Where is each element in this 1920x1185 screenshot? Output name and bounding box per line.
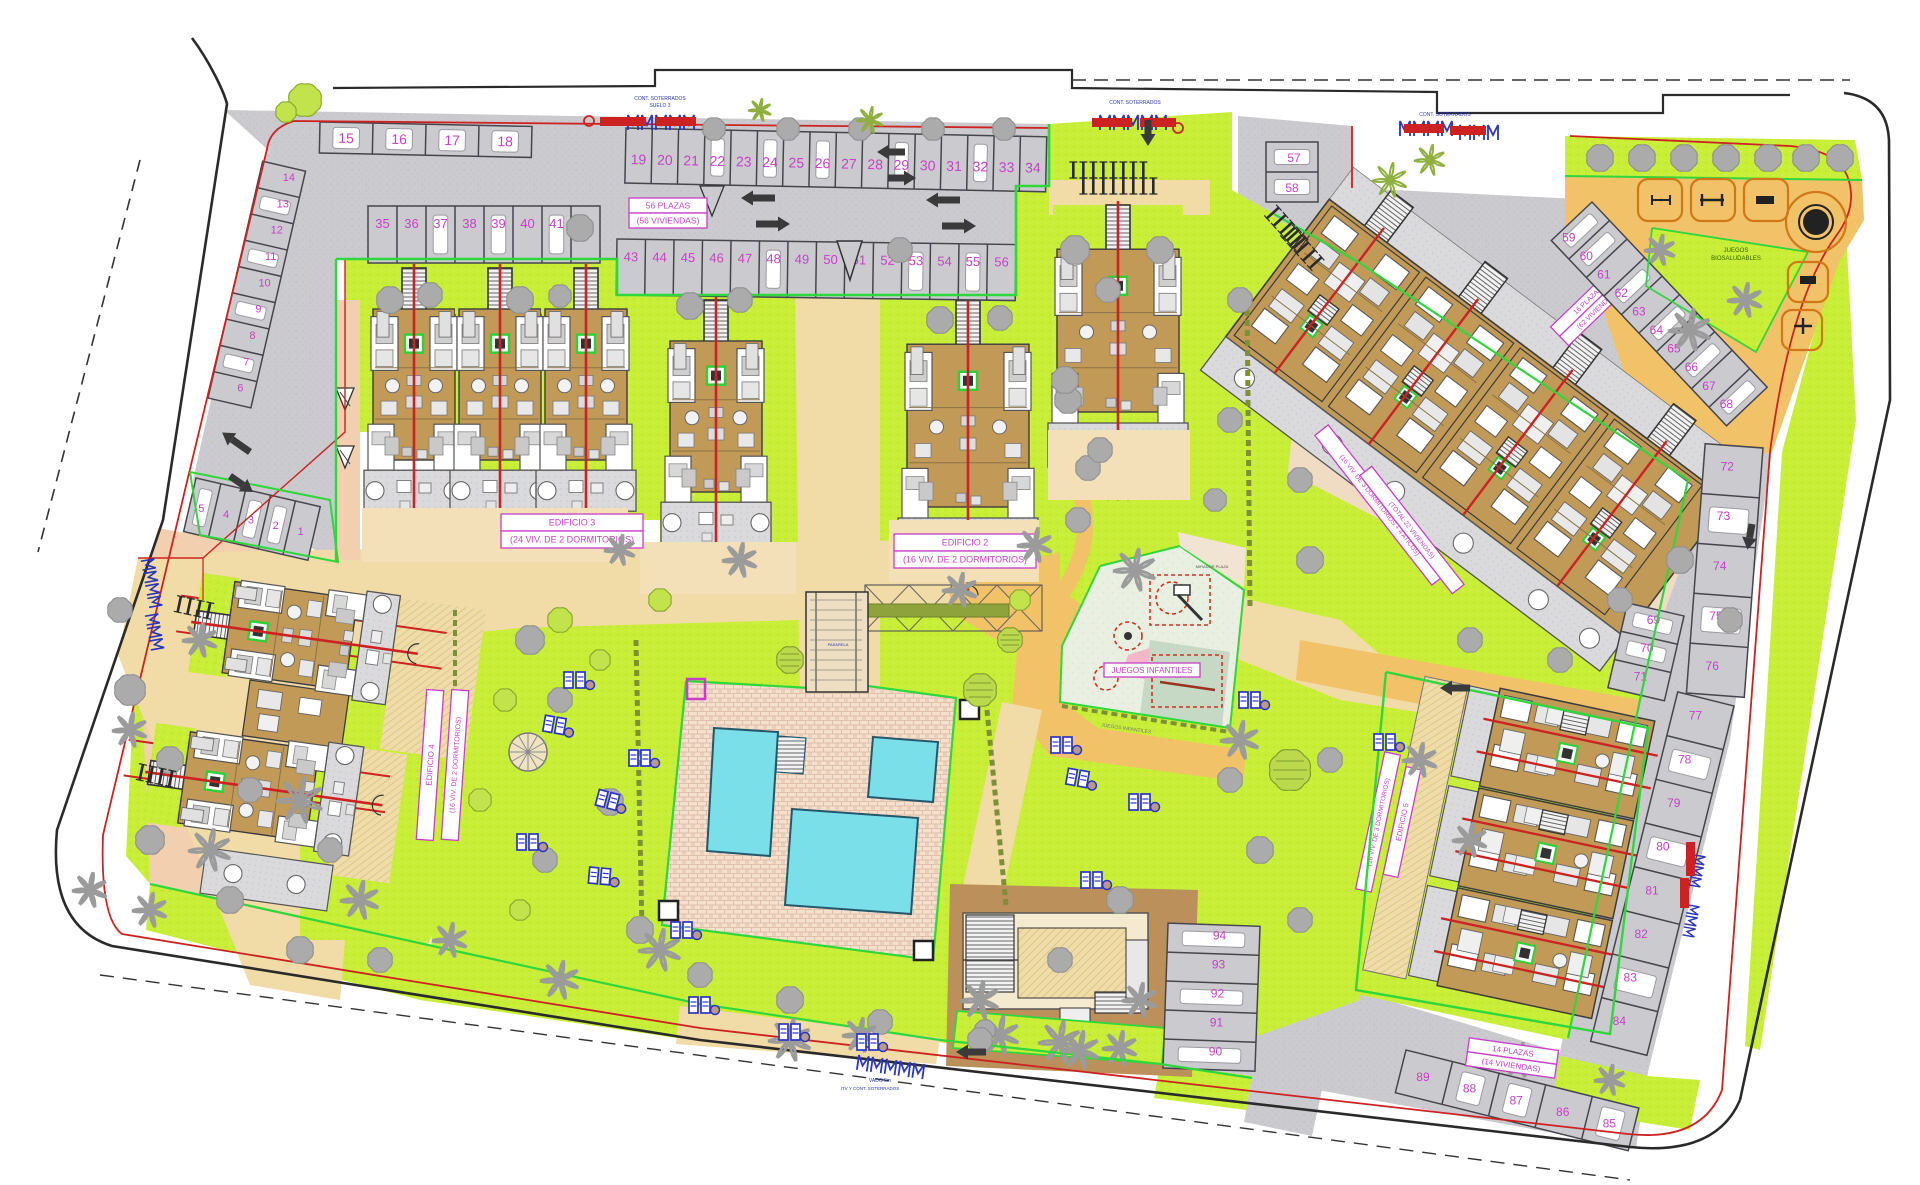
svg-text:10: 10 [258,277,270,289]
svg-text:JUEGOS INFANTILES: JUEGOS INFANTILES [1112,666,1193,675]
svg-text:56: 56 [994,254,1009,269]
svg-text:28: 28 [867,156,883,172]
svg-text:SUELO 3: SUELO 3 [649,103,670,109]
svg-text:12: 12 [271,225,283,237]
svg-text:76: 76 [1706,659,1720,673]
svg-text:JUEGOS: JUEGOS [1724,248,1749,254]
svg-text:46: 46 [709,250,724,265]
svg-text:VADO 5m: VADO 5m [869,1078,891,1084]
svg-text:25: 25 [788,154,804,170]
svg-text:34: 34 [1025,159,1041,175]
svg-text:62: 62 [1615,286,1629,300]
svg-text:CONT. SOTERRADOS: CONT. SOTERRADOS [634,96,686,102]
svg-text:13: 13 [277,198,289,210]
svg-text:66: 66 [1685,360,1699,374]
svg-text:31: 31 [946,158,962,174]
svg-text:30: 30 [920,157,936,173]
svg-text:81: 81 [1645,883,1659,897]
svg-text:67: 67 [1702,379,1716,393]
svg-text:26: 26 [815,155,831,171]
svg-text:61: 61 [1597,268,1611,282]
svg-text:CONT. SOTERRADOS: CONT. SOTERRADOS [1419,112,1471,118]
svg-text:79: 79 [1667,796,1681,810]
svg-text:43: 43 [624,249,639,264]
svg-text:8: 8 [249,330,255,342]
svg-text:5: 5 [198,503,204,515]
svg-text:94: 94 [1213,928,1227,942]
svg-text:24: 24 [762,154,778,170]
svg-text:87: 87 [1509,1093,1523,1107]
svg-text:72: 72 [1721,459,1735,473]
svg-text:2: 2 [273,520,279,532]
svg-text:35: 35 [375,216,389,231]
svg-text:63: 63 [1632,305,1646,319]
svg-text:47: 47 [738,251,753,266]
svg-text:7: 7 [243,356,249,368]
svg-text:37: 37 [433,216,447,231]
svg-text:48: 48 [766,251,781,266]
svg-text:36: 36 [404,216,418,231]
svg-text:4: 4 [223,509,229,521]
svg-text:86: 86 [1556,1105,1570,1119]
svg-text:41: 41 [549,216,563,231]
svg-text:21: 21 [683,152,699,168]
svg-text:68: 68 [1720,397,1734,411]
svg-text:78: 78 [1678,752,1692,766]
svg-text:85: 85 [1603,1116,1617,1130]
svg-text:BIOSALUDABLES: BIOSALUDABLES [1711,256,1761,262]
svg-text:44: 44 [652,249,667,264]
svg-text:MIRADOR PLAZA: MIRADOR PLAZA [1196,564,1229,569]
svg-text:90: 90 [1209,1044,1223,1058]
svg-text:1: 1 [298,526,304,538]
svg-text:39: 39 [491,216,505,231]
svg-text:18: 18 [497,133,513,149]
svg-text:6: 6 [237,383,243,395]
svg-text:57: 57 [1287,151,1301,165]
svg-text:50: 50 [823,252,838,267]
svg-text:88: 88 [1463,1082,1477,1096]
svg-text:58: 58 [1285,181,1299,195]
svg-text:38: 38 [462,216,476,231]
svg-text:32: 32 [972,158,988,174]
svg-text:23: 23 [736,153,752,169]
svg-text:73: 73 [1717,509,1731,523]
svg-text:11: 11 [265,251,276,263]
svg-text:PASARELA: PASARELA [828,642,849,647]
svg-text:14: 14 [283,172,295,184]
svg-text:54: 54 [937,253,952,268]
svg-text:CONT. SOTERRADOS: CONT. SOTERRADOS [1109,100,1161,106]
svg-text:77: 77 [1689,709,1703,723]
svg-text:ITV Y CONT. SOTERRADOS: ITV Y CONT. SOTERRADOS [841,1086,900,1091]
svg-text:17: 17 [444,132,460,148]
svg-text:60: 60 [1580,249,1594,263]
svg-text:20: 20 [657,152,673,168]
svg-text:83: 83 [1624,971,1638,985]
svg-text:EDIFICIO 3: EDIFICIO 3 [549,518,596,528]
svg-text:93: 93 [1212,957,1226,971]
svg-text:56 PLAZAS: 56 PLAZAS [646,201,691,211]
svg-text:45: 45 [681,250,696,265]
svg-text:19: 19 [631,151,647,167]
svg-text:49: 49 [795,251,810,266]
svg-text:EDIFICIO 2: EDIFICIO 2 [942,538,989,548]
svg-text:64: 64 [1650,323,1664,337]
svg-text:84: 84 [1613,1014,1627,1028]
svg-text:27: 27 [841,156,857,172]
svg-text:59: 59 [1562,231,1576,245]
svg-text:89: 89 [1416,1070,1430,1084]
svg-text:(56 VIVIENDAS): (56 VIVIENDAS) [637,216,700,226]
svg-text:74: 74 [1713,559,1727,573]
svg-text:9: 9 [255,304,261,316]
svg-text:91: 91 [1210,1015,1224,1029]
svg-text:22: 22 [709,153,725,169]
svg-text:92: 92 [1211,986,1225,1000]
svg-text:15: 15 [338,130,354,146]
svg-text:33: 33 [999,159,1015,175]
svg-text:55: 55 [966,254,981,269]
svg-text:40: 40 [520,216,534,231]
svg-text:(16 VIV. DE 2 DORMITORIOS): (16 VIV. DE 2 DORMITORIOS) [903,555,1027,565]
svg-text:80: 80 [1656,840,1670,854]
svg-text:82: 82 [1634,927,1648,941]
svg-text:16: 16 [391,131,407,147]
svg-text:29: 29 [893,157,909,173]
